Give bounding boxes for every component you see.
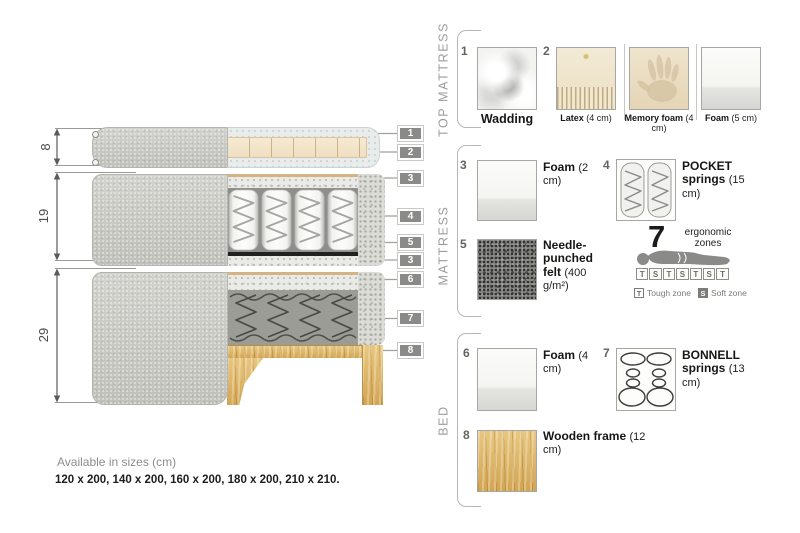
bed-cover [92, 272, 228, 405]
topper-button-bottom [92, 159, 99, 166]
section-label-mattress: MATTRESS [437, 181, 452, 311]
available-sizes-title: Available in sizes (cm) [57, 455, 176, 469]
pocket-springs-caption: POCKET springs (15 cm) [682, 160, 754, 200]
foam4-sample-image [477, 348, 537, 411]
memory-foam-name: Memory foam [624, 113, 683, 123]
dimension-29-label: 29 [37, 324, 51, 346]
wadding-name: Wadding [481, 112, 533, 126]
zone-box-7: T [716, 268, 728, 280]
foam2-name: Foam [543, 160, 575, 174]
wooden-frame-name: Wooden frame [543, 429, 626, 443]
bonnell-springs-sample-image [616, 348, 676, 411]
wadding-caption: Wadding [470, 112, 544, 126]
mattress-side-border [358, 174, 385, 266]
item-number-7: 7 [603, 346, 610, 360]
item-number-5: 5 [460, 237, 467, 251]
felt-caption: Needle-punched felt (400 g/m²) [543, 239, 609, 293]
bed-bonnell-springs [227, 290, 358, 345]
foam4-name: Foam [543, 348, 575, 362]
layer-tag-5: 5 [398, 235, 423, 250]
zone-box-5: T [690, 268, 702, 280]
dimension-8-label: 8 [39, 136, 53, 158]
mattress-pocket-springs [227, 188, 358, 252]
zone-sequence: T S T S T S T [636, 268, 729, 280]
zone-box-4: S [676, 268, 688, 280]
layer-tag-8: 8 [398, 343, 423, 358]
layer-tag-3b: 3 [398, 253, 423, 268]
layer-tag-3a: 3 [398, 171, 423, 186]
zone-legend: T Tough zone S Soft zone [634, 288, 747, 298]
pocket-springs-name: POCKET springs [682, 159, 732, 186]
topper-button-top [92, 131, 99, 138]
foam5-caption: Foam (5 cm) [694, 113, 768, 123]
mattress-foam-bottom [227, 256, 358, 266]
felt-sample-image [477, 239, 537, 300]
wooden-frame-caption: Wooden frame (12 cm) [543, 430, 648, 457]
soft-zone-key: S [698, 288, 708, 298]
bed-right-leg [362, 345, 383, 405]
item-number-1: 1 [461, 44, 468, 58]
memory-foam-sample-image [629, 47, 689, 110]
latex-size: (4 cm) [586, 113, 612, 123]
memory-foam-caption: Memory foam (4 cm) [622, 113, 696, 133]
bed-side-border [358, 272, 385, 345]
layer-tag-6: 6 [398, 272, 423, 287]
bed-wooden-rail [227, 345, 383, 358]
foam2-caption: Foam (2 cm) [543, 161, 605, 188]
layer-tag-4: 4 [398, 209, 423, 224]
latex-sample-image [556, 47, 616, 110]
mattress-cover [92, 174, 228, 266]
dimension-19-label: 19 [37, 205, 51, 227]
bonnell-springs-graphic [617, 349, 675, 410]
available-sizes-list: 120 x 200, 140 x 200, 160 x 200, 180 x 2… [55, 474, 340, 486]
topper-latex-blocks [227, 137, 367, 158]
pocket-springs-sample-image [616, 159, 676, 221]
bonnell-springs-caption: BONNELL springs (13 cm) [682, 349, 754, 389]
wadding-sample-image [477, 47, 537, 110]
hand-imprint-graphic [630, 48, 688, 109]
wooden-frame-sample-image [477, 430, 537, 492]
item-number-3: 3 [460, 158, 467, 172]
zone-box-1: T [636, 268, 648, 280]
tough-zone-key: T [634, 288, 644, 298]
soft-zone-label: Soft zone [711, 288, 747, 298]
topper-cover [92, 127, 228, 168]
section-label-bed: BED [437, 356, 452, 486]
foam4-caption: Foam (4 cm) [543, 349, 605, 376]
foam5-sample-image [701, 47, 761, 110]
layer-tag-7: 7 [398, 311, 423, 326]
latex-caption: Latex (4 cm) [548, 113, 624, 123]
foam2-sample-image [477, 160, 537, 221]
bed-foam-layer [227, 275, 358, 290]
zone-box-6: S [703, 268, 715, 280]
ergonomic-zones-label: ergonomic zones [679, 227, 737, 249]
item-number-4: 4 [603, 158, 610, 172]
pocket-springs-graphic [617, 160, 675, 220]
zone-box-2: S [649, 268, 661, 280]
sleeping-person-icon [634, 248, 734, 268]
zone-box-3: T [663, 268, 675, 280]
option-divider-1 [624, 44, 625, 120]
latex-name: Latex [560, 113, 584, 123]
option-divider-2 [696, 44, 697, 120]
item-number-6: 6 [463, 346, 470, 360]
item-number-8: 8 [463, 428, 470, 442]
section-label-top-mattress: TOP MATTRESS [437, 15, 452, 145]
item-number-2: 2 [543, 44, 550, 58]
foam5-name: Foam [705, 113, 729, 123]
tough-zone-label: Tough zone [647, 288, 691, 298]
layer-tag-1: 1 [398, 126, 423, 141]
layer-tag-2: 2 [398, 145, 423, 160]
mattress-foam-top [227, 177, 358, 188]
foam5-size: (5 cm) [732, 113, 758, 123]
mattress-infographic: 8 19 29 [0, 0, 800, 533]
